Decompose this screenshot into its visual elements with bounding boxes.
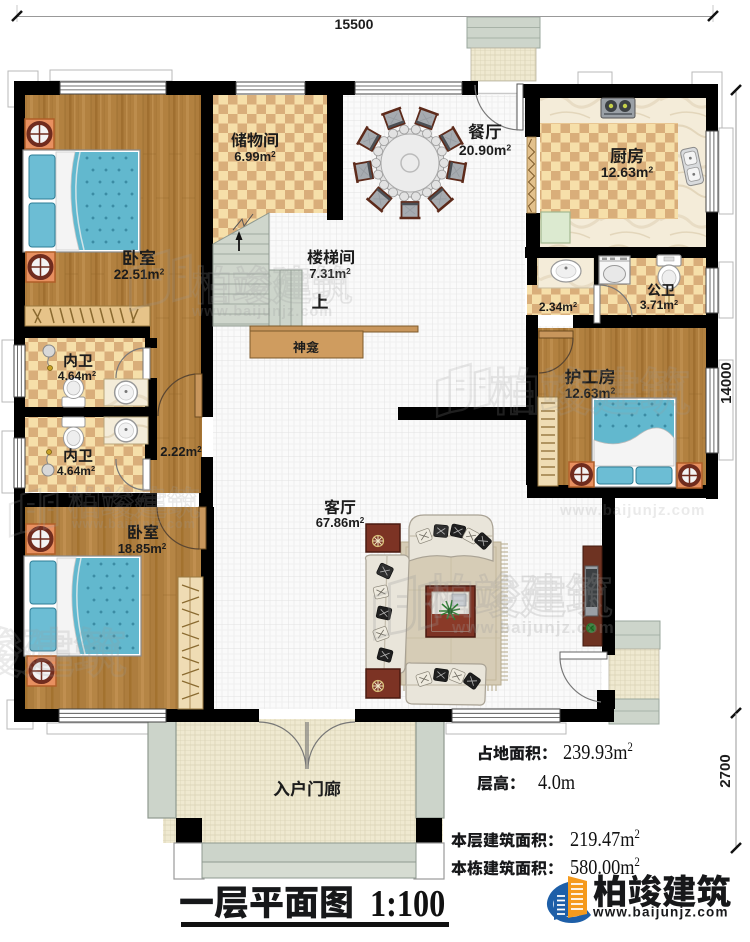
svg-text:4.64m2: 4.64m2	[57, 464, 95, 478]
svg-text:580.00m2: 580.00m2	[570, 854, 640, 879]
svg-text:67.86m2: 67.86m2	[316, 515, 365, 530]
svg-text:www.baijunjz.com: www.baijunjz.com	[559, 502, 705, 519]
svg-text:20.90m2: 20.90m2	[459, 142, 511, 158]
svg-text:2.34m2: 2.34m2	[539, 300, 577, 314]
svg-text:www.baijunjz.com: www.baijunjz.com	[592, 905, 729, 920]
svg-text:14000: 14000	[718, 362, 735, 404]
svg-text:3.71m2: 3.71m2	[640, 298, 678, 312]
svg-text:6.99m2: 6.99m2	[234, 149, 276, 164]
svg-text:www.baijunjz.com: www.baijunjz.com	[451, 618, 615, 637]
svg-text:2700: 2700	[717, 754, 734, 787]
svg-text:219.47m2: 219.47m2	[570, 826, 640, 851]
svg-text:18.85m2: 18.85m2	[118, 541, 167, 556]
svg-text:12.63m2: 12.63m2	[601, 164, 653, 180]
svg-text:2.22m2: 2.22m2	[160, 444, 202, 459]
svg-text:1:100: 1:100	[370, 883, 445, 925]
svg-text:www.baijunjz.com: www.baijunjz.com	[71, 517, 196, 531]
svg-text:4.64m2: 4.64m2	[58, 369, 96, 383]
svg-text:www.baijunjz.com: www.baijunjz.com	[191, 304, 333, 320]
svg-text:4.0m: 4.0m	[538, 771, 575, 795]
svg-text:239.93m2: 239.93m2	[563, 739, 633, 764]
svg-text:15500: 15500	[335, 16, 374, 32]
